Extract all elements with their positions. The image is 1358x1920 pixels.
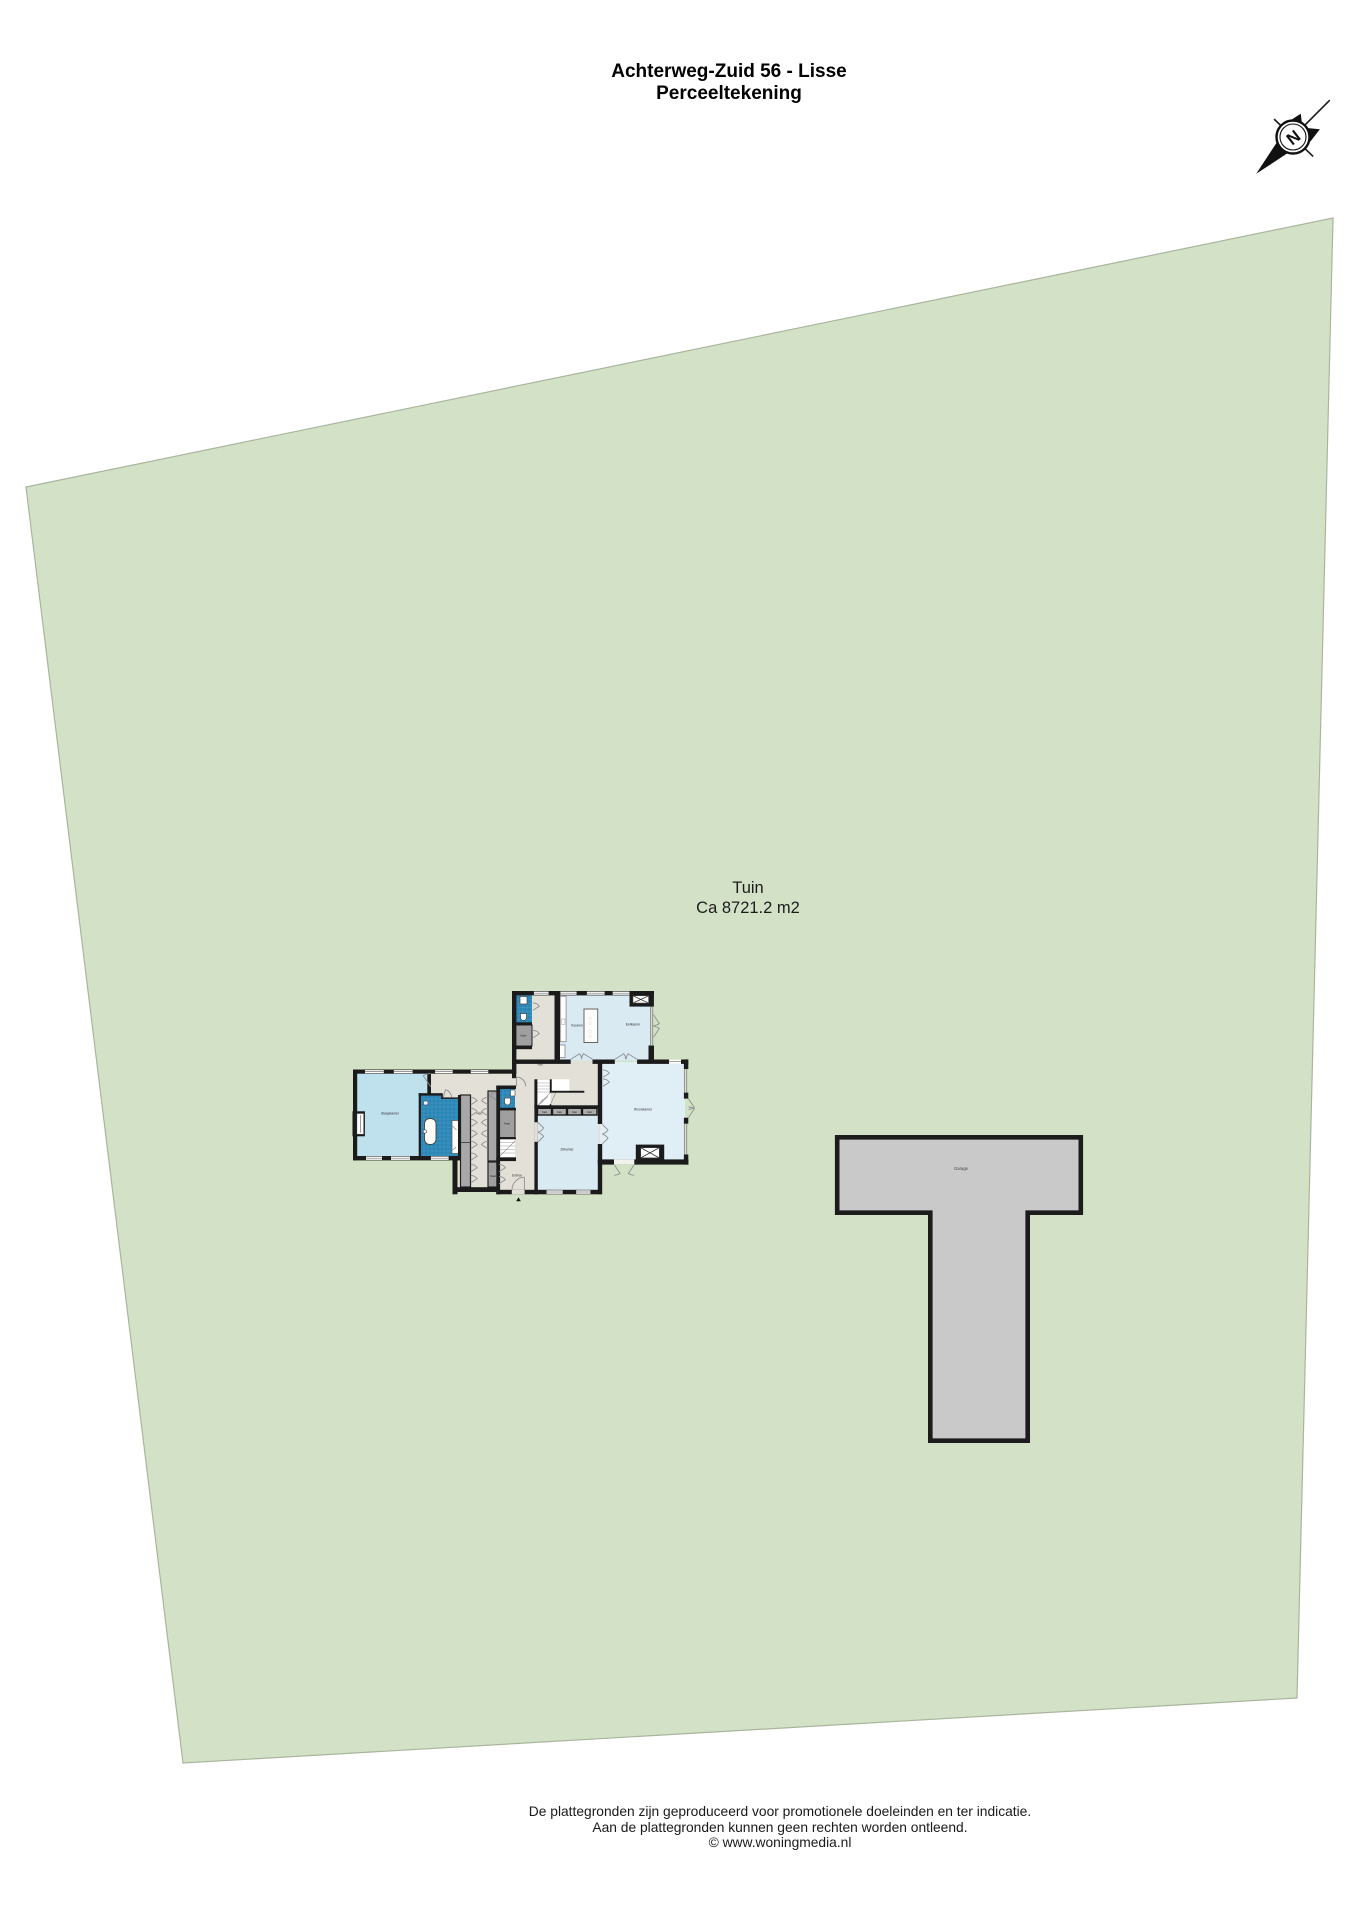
svg-text:Keuken: Keuken [571,1023,583,1027]
svg-text:Kast: Kast [572,1111,577,1114]
svg-text:Kast: Kast [542,1111,547,1114]
svg-text:Kast: Kast [504,1122,510,1126]
svg-text:Eetkamer: Eetkamer [626,1022,641,1026]
svg-text:Kast: Kast [520,1034,526,1038]
svg-text:Kast: Kast [490,1174,496,1178]
svg-text:Woonkamer: Woonkamer [634,1108,653,1112]
svg-text:Zitkamer: Zitkamer [560,1148,574,1152]
svg-text:Slaapkamer: Slaapkamer [381,1112,400,1116]
svg-text:Garage: Garage [954,1166,969,1171]
svg-text:Kast: Kast [557,1111,562,1114]
svg-text:Kast: Kast [587,1111,592,1114]
svg-text:Entree: Entree [512,1174,522,1178]
